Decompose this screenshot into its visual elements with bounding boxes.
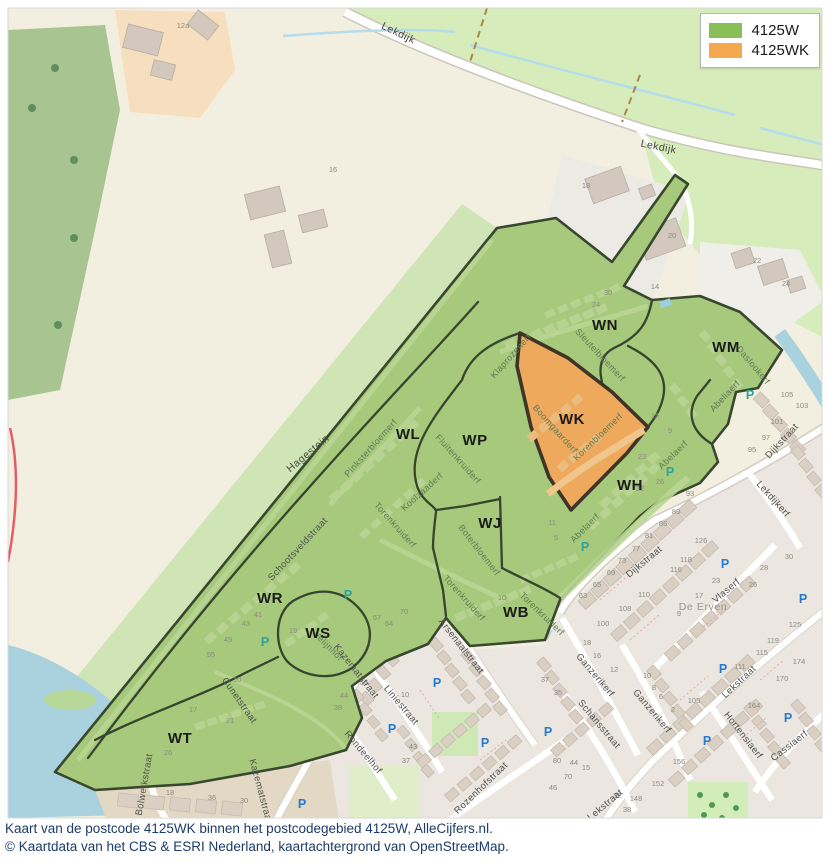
caption-line-1: Kaart van de postcode 4125WK binnen het … [5,820,828,838]
house-number: 70 [400,607,408,616]
house-number: 19 [289,626,297,635]
house-number: 100 [597,619,610,628]
house-number: 10 [498,593,506,602]
house-number: 89 [672,507,680,516]
house-number: 49 [224,635,232,644]
house-number: 41 [254,610,262,619]
house-number: 18 [583,638,591,647]
house-number: 15 [651,411,659,420]
house-number: 81 [645,531,653,540]
house-number: 55 [207,650,215,659]
house-number: 65 [593,580,601,589]
house-number: 8 [652,683,656,692]
legend-row: 4125WK [709,42,809,59]
parking-icon: P [581,540,589,554]
house-number: 108 [619,604,632,613]
house-number: 36 [208,793,216,802]
parking-icon: P [261,635,269,649]
map-screenshot: 12a1618202224105103101979593898581777369… [0,0,828,861]
house-number: 174 [793,657,806,666]
house-number: 164 [748,701,761,710]
house-number: 10 [643,671,651,680]
postcode-region-label: WK [559,411,585,428]
caption-line-2: © Kaartdata van het CBS & ESRI Nederland… [5,838,828,856]
house-number: 97 [762,433,770,442]
house-number: 37 [541,675,549,684]
house-number: 26 [164,748,172,757]
legend-row: 4125W [709,22,809,39]
parking-icon: P [721,557,729,571]
house-number: 43 [242,619,250,628]
house-number: 20 [668,231,676,240]
house-number: 116 [670,565,682,574]
house-number: 63 [579,591,587,600]
postcode-region-label: WR [257,590,283,607]
house-number: 18 [166,788,174,797]
parking-icon: P [544,725,552,739]
house-number: 30 [785,552,793,561]
house-number: 12a [177,21,190,30]
house-number: 6 [659,692,663,701]
postcode-region-label: WL [396,426,420,443]
parking-icon: P [344,588,352,602]
house-number: 23 [638,452,646,461]
legend-swatch-4125W [709,23,742,38]
house-number: 43 [409,742,417,751]
house-number: 30 [604,288,612,297]
house-number: 46 [549,783,557,792]
caption: Kaart van de postcode 4125WK binnen het … [0,820,828,861]
parking-icon: P [388,722,396,736]
house-number: 18 [582,181,590,190]
street-label: De Erven [679,601,728,613]
house-number: 15 [582,763,590,772]
parking-icon: P [799,592,807,606]
house-number: 105 [688,696,701,705]
pond-island [44,690,96,710]
postcode-region-label: WS [305,625,330,642]
house-number: 9 [668,426,672,435]
house-number: 125 [789,620,802,629]
postcode-region-label: WM [712,339,740,356]
house-number: 148 [630,794,643,803]
house-number: 14 [651,282,659,291]
building [169,797,190,812]
legend-label: 4125WK [751,42,809,59]
house-number: 30 [240,796,248,805]
house-number: 80 [553,756,561,765]
house-number: 16 [329,165,337,174]
house-number: 37 [402,756,410,765]
house-number: 101 [771,417,784,426]
house-number: 95 [748,445,756,454]
house-number: 38 [623,805,631,814]
house-number: 22 [753,256,761,265]
house-number: 21 [226,716,234,725]
house-number: 26 [749,580,757,589]
legend-label: 4125W [751,22,799,39]
postcode-region-label: WN [592,317,618,334]
house-number: 73 [618,556,626,565]
postcode-region-label: WB [503,604,529,621]
parking-icon: P [666,465,674,479]
house-number: 103 [796,401,809,410]
house-number: 119 [767,636,779,645]
building [823,751,828,766]
house-number: 24 [782,279,790,288]
house-number: 70 [564,772,572,781]
house-number: 5 [554,533,558,542]
house-number: 11 [548,518,556,527]
house-number: 17 [189,705,197,714]
parking-icon: P [298,797,306,811]
house-number: 126 [695,536,708,545]
house-number: 105 [781,390,794,399]
house-number: 115 [756,648,768,657]
house-number: 118 [680,555,692,564]
house-number: 93 [686,489,694,498]
map-canvas: 12a1618202224105103101979593898581777369… [0,0,828,820]
house-number: 16 [593,651,601,660]
parking-icon: P [784,711,792,725]
parking-icon: P [719,662,727,676]
postcode-region-label: WJ [478,515,502,532]
house-number: 44 [340,691,348,700]
house-number: 44 [570,758,578,767]
house-number: 152 [652,779,665,788]
house-number: 38 [334,703,342,712]
house-number: 35 [554,688,562,697]
park [350,765,420,820]
house-number: 23 [712,576,720,585]
house-number: 26 [656,477,664,486]
park [688,782,748,820]
parking-icon: P [703,734,711,748]
house-number: 67 [373,613,381,622]
parking-icon: P [746,388,754,402]
house-number: 17 [695,591,703,600]
house-number: 170 [776,674,789,683]
house-number: 85 [659,519,667,528]
postcode-region-label: WT [168,730,192,747]
house-number: 12 [610,665,618,674]
house-number: 28 [760,563,768,572]
house-number: 64 [385,619,393,628]
house-number: 24 [592,300,600,309]
postcode-region-label: WP [462,432,487,449]
legend: 4125W 4125WK [700,13,820,68]
legend-swatch-4125WK [709,43,742,58]
postcode-region-label: WH [617,477,643,494]
house-number: 110 [638,590,650,599]
parking-icon: P [433,676,441,690]
house-number: 77 [632,544,640,553]
house-number: 69 [607,568,615,577]
house-number: 156 [673,757,686,766]
parking-icon: P [481,736,489,750]
house-number: 2 [671,705,675,714]
